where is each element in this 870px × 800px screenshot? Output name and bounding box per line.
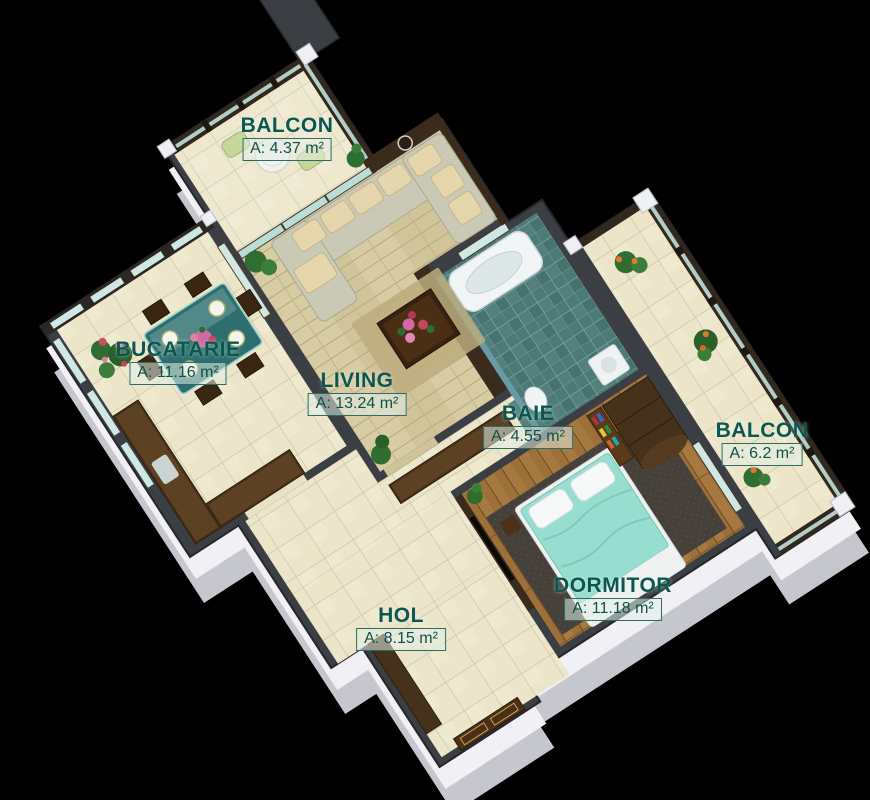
floorplan-render xyxy=(0,0,870,800)
floors xyxy=(12,0,839,800)
plan-group xyxy=(0,0,855,800)
floorplan-scene: BALCON A: 4.37 m² BUCATARIE A: 11.16 m² … xyxy=(0,0,870,800)
